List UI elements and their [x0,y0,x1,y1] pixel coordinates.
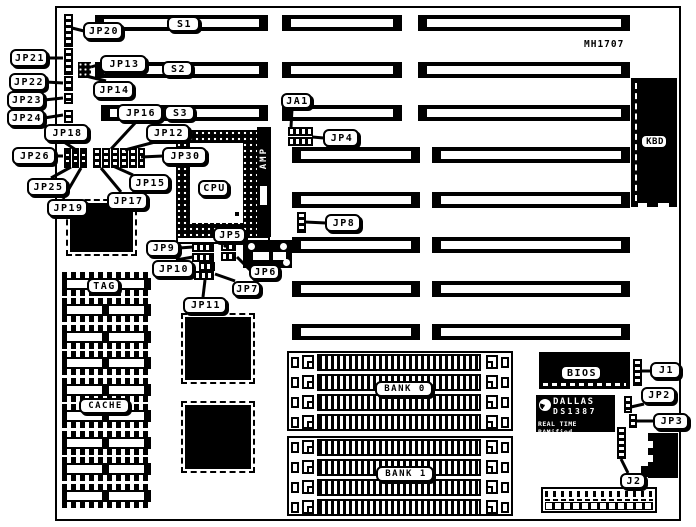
callout-jp23: JP23 [7,91,45,109]
callout-jp7: JP7 [232,281,261,297]
callout-jp6: JP6 [249,264,280,280]
callout-jp17: JP17 [107,192,148,210]
callout-s3: S3 [164,105,195,121]
callout-j1: J1 [650,362,681,379]
callout-jp18: JP18 [44,124,89,142]
callout-jp8: JP8 [325,214,361,232]
callout-jp11: JP11 [183,297,227,314]
callout-bank0: BANK 0 [375,381,433,397]
callout-jp9: JP9 [146,240,180,257]
callout-jp16: JP16 [117,104,163,122]
callout-jp21: JP21 [10,49,48,67]
callout-jp14: JP14 [93,81,134,99]
callout-cpu: CPU [198,180,229,197]
callout-jp3: JP3 [653,413,689,430]
callout-j2: J2 [620,473,646,489]
callout-jp19: JP19 [47,199,88,217]
callout-pointers [0,0,696,527]
callout-jp22: JP22 [9,73,47,91]
motherboard-diagram: MH1707 AMP [0,0,696,527]
callout-bank1: BANK 1 [376,466,434,482]
callout-jp10: JP10 [152,260,194,278]
callout-jp20: JP20 [83,22,123,40]
callout-jp26: JP26 [12,147,56,165]
callout-kbd: KBD [640,134,668,149]
callout-jp4: JP4 [323,129,359,147]
callout-ja1: JA1 [281,93,312,109]
callout-bios: BIOS [560,365,602,381]
callout-s2: S2 [162,61,193,77]
callout-jp15: JP15 [129,174,170,192]
callout-jp30: JP30 [162,147,207,165]
callout-jp24: JP24 [7,109,45,127]
callout-jp25: JP25 [27,178,68,196]
callout-s1: S1 [167,16,200,32]
callout-tag: TAG [87,278,120,294]
callout-jp5: JP5 [213,227,246,243]
callout-jp13: JP13 [100,55,147,73]
callout-cache: CACHE [79,398,130,414]
callout-jp12: JP12 [146,124,190,142]
callout-jp2: JP2 [641,387,676,404]
